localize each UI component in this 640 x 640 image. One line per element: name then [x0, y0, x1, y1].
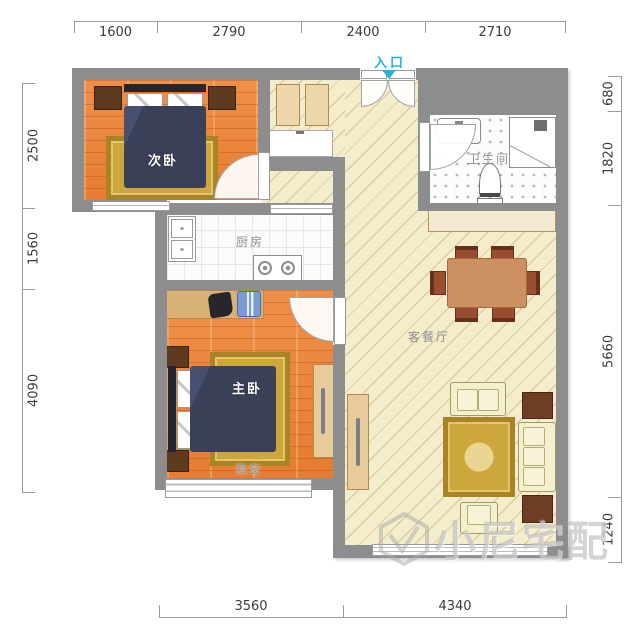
- nightstand: [166, 346, 189, 368]
- side-table: [522, 392, 553, 419]
- secondary-bedroom-window: [92, 201, 170, 211]
- bathroom-door-leaf: [419, 122, 430, 172]
- secondary-bedroom-door-leaf: [258, 152, 270, 200]
- sink-basin: [171, 240, 193, 259]
- bathroom-cabinet: [428, 210, 556, 232]
- blue-chair: [237, 291, 261, 317]
- dim-left-3: 4090: [26, 289, 42, 492]
- sofa-cushion: [523, 427, 545, 446]
- sink-basin: [171, 219, 193, 238]
- dim-line-right: [621, 76, 622, 563]
- dim-top-4: 2710: [425, 25, 565, 40]
- dim-bottom-1: 3560: [159, 599, 343, 614]
- kitchen-sliding-door: [270, 204, 333, 214]
- wardrobe-handle: [356, 418, 360, 466]
- dim-line-top: [74, 21, 566, 22]
- bay-window: [165, 479, 312, 498]
- dim-left-1: 2500: [26, 83, 42, 208]
- nightstand: [166, 450, 189, 472]
- wall-master-right-lower: [333, 345, 345, 558]
- master-bedroom-label: 主卧: [232, 378, 262, 397]
- wardrobe-handle: [321, 388, 325, 434]
- wall-left-upper: [72, 80, 84, 212]
- master-bedroom-door-leaf: [334, 297, 346, 345]
- toilet-seat-line: [480, 193, 500, 197]
- living-room-rug: [443, 417, 515, 497]
- entry-console: [267, 130, 333, 157]
- dining-chair: [492, 306, 515, 322]
- secondary-bed-blanket: [124, 106, 206, 188]
- secondary-bedroom-label: 次卧: [148, 150, 178, 169]
- corner-shower: [509, 117, 556, 168]
- nightstand: [94, 86, 122, 110]
- desk-chair: [207, 292, 233, 319]
- stove-burner: [258, 261, 272, 275]
- kitchen-label: 厨房: [236, 233, 264, 250]
- sofa-cushion: [457, 389, 478, 411]
- wall-left-lower: [155, 203, 167, 480]
- dim-right-2: 1820: [601, 111, 617, 205]
- bed-headboard: [168, 366, 176, 452]
- entry-cabinet: [305, 84, 329, 126]
- wall-bathroom-bottom: [418, 203, 568, 211]
- shower-head: [534, 120, 547, 131]
- wall-niche: [262, 157, 345, 171]
- dining-table: [447, 258, 527, 308]
- dim-top-3: 2400: [301, 25, 425, 40]
- dim-right-1: 680: [601, 76, 617, 111]
- dim-tick: [565, 21, 566, 33]
- toilet-bowl: [479, 163, 501, 197]
- entrance-label: 入口: [374, 52, 406, 71]
- watermark: 小尼宅配: [378, 508, 610, 569]
- dim-line-left: [22, 83, 23, 493]
- wall-bathroom-block: [430, 80, 556, 115]
- dining-chair: [455, 306, 478, 322]
- stove-burner: [281, 261, 295, 275]
- living-dining-label: 客餐厅: [408, 328, 450, 345]
- sofa-cushion: [523, 447, 545, 466]
- entrance-arrow-icon: [382, 70, 396, 79]
- bathroom-label: 卫生间: [468, 150, 510, 167]
- wall-secondary-right: [258, 80, 270, 152]
- dim-bottom-2: 4340: [343, 599, 567, 614]
- wall-master-right-upper: [333, 171, 345, 297]
- wall-top: [72, 68, 568, 80]
- entry-cabinet: [276, 84, 300, 126]
- watermark-logo-icon: [378, 511, 430, 567]
- wall-kitchen-master-divider: [155, 280, 333, 290]
- dim-top-1: 1600: [74, 25, 157, 40]
- dim-top-2: 2790: [157, 25, 301, 40]
- wall-right: [556, 68, 568, 558]
- nightstand: [208, 86, 236, 110]
- dim-right-3: 5660: [601, 205, 617, 497]
- sofa-cushion: [478, 389, 499, 411]
- dining-chair: [430, 271, 446, 295]
- console-handle: [296, 131, 304, 134]
- bed-headboard: [124, 84, 206, 92]
- sofa-cushion: [523, 467, 545, 486]
- dim-tick: [22, 492, 35, 493]
- bay-window-label: 飘窗: [236, 461, 262, 477]
- dim-left-2: 1560: [26, 208, 42, 289]
- watermark-text: 小尼宅配: [434, 508, 610, 569]
- dim-line-bottom: [159, 617, 567, 618]
- floor-plan: 次卧 厨房 主卧 卫生间 客餐厅: [0, 0, 640, 640]
